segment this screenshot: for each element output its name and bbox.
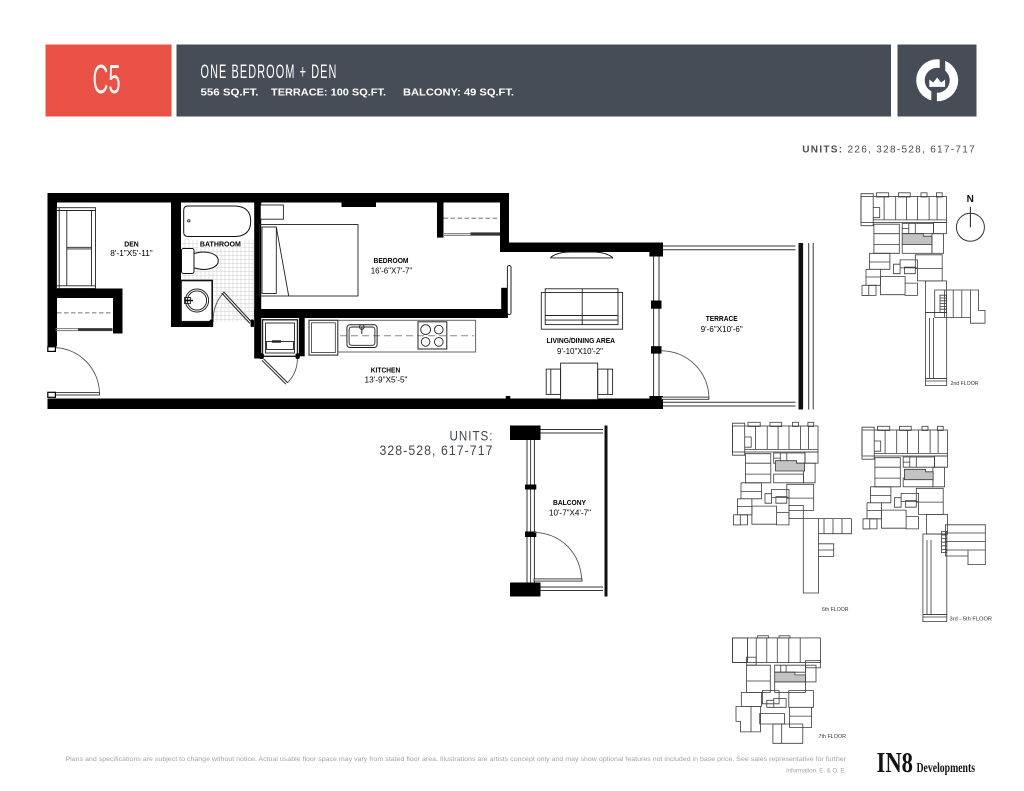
svg-text:Plans and specifications are s: Plans and specifications are subject to … <box>66 757 847 763</box>
svg-text:6th FLOOR: 6th FLOOR <box>822 607 849 613</box>
svg-text:information. E. & O. E.: information. E. & O. E. <box>786 769 846 775</box>
svg-text:DEN: DEN <box>124 239 139 248</box>
svg-text:9'-6"X10'-6": 9'-6"X10'-6" <box>701 325 743 334</box>
svg-text:10'-7"X4'-7": 10'-7"X4'-7" <box>549 508 591 517</box>
svg-text:LIVING/DINING AREA: LIVING/DINING AREA <box>547 336 616 345</box>
svg-text:BALCONY: 49 SQ.FT.: BALCONY: 49 SQ.FT. <box>403 87 514 98</box>
svg-text:BEDROOM: BEDROOM <box>374 256 409 265</box>
svg-text:13'-9"X5'-5": 13'-9"X5'-5" <box>365 375 408 384</box>
svg-text:UNITS: 226, 328-528, 617-717: UNITS: 226, 328-528, 617-717 <box>802 145 976 156</box>
svg-text:8'-1"X5'-11": 8'-1"X5'-11" <box>110 249 153 258</box>
svg-text:N: N <box>967 194 974 205</box>
svg-text:BATHROOM: BATHROOM <box>200 239 241 248</box>
svg-text:BALCONY: BALCONY <box>553 498 586 507</box>
svg-text:TERRACE: TERRACE <box>706 314 738 323</box>
svg-text:328-528, 617-717: 328-528, 617-717 <box>380 442 494 458</box>
svg-text:3rd - 5th FLOOR: 3rd - 5th FLOOR <box>950 616 993 622</box>
svg-text:KITCHEN: KITCHEN <box>371 365 401 374</box>
svg-text:ONE BEDROOM + DEN: ONE BEDROOM + DEN <box>201 61 338 83</box>
svg-text:7th FLOOR: 7th FLOOR <box>819 734 847 740</box>
svg-text:556 SQ.FT.: 556 SQ.FT. <box>201 87 259 98</box>
svg-text:IN8: IN8 <box>877 748 914 779</box>
svg-text:Developments: Developments <box>917 760 976 775</box>
svg-text:9'-10"X10'-2": 9'-10"X10'-2" <box>557 347 603 356</box>
svg-text:C5: C5 <box>93 56 121 102</box>
svg-text:2nd FLOOR: 2nd FLOOR <box>951 381 979 387</box>
svg-text:TERRACE: 100 SQ.FT.: TERRACE: 100 SQ.FT. <box>271 87 386 98</box>
svg-text:16'-6"X7'-7": 16'-6"X7'-7" <box>371 267 413 276</box>
